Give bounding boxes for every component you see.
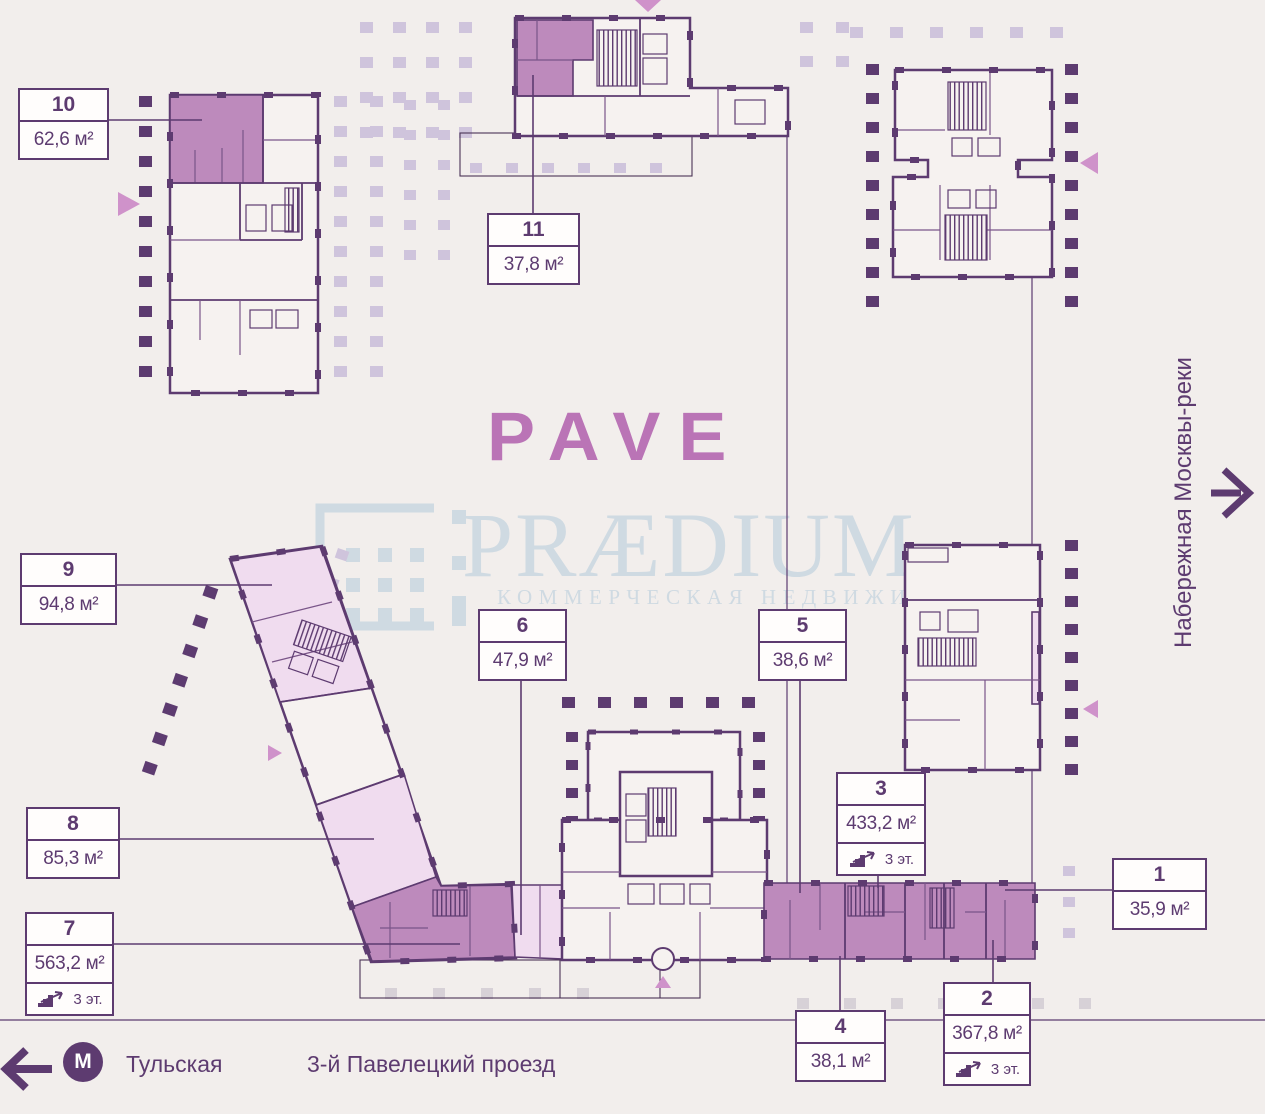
unit-label-7[interactable]: 7 563,2 м² 3 эт. (25, 912, 114, 1016)
unit-label-10[interactable]: 10 62,6 м² (18, 88, 109, 160)
metro-station-label: Тульская (126, 1051, 222, 1078)
embankment-street-label: Набережная Москвы-реки (1170, 357, 1198, 648)
unit-label-2[interactable]: 2 367,8 м² 3 эт. (943, 982, 1031, 1086)
triangle-west-small-icon (1083, 700, 1098, 718)
stairs-icon (954, 1060, 982, 1078)
metro-letter: М (74, 1050, 92, 1074)
unit-number: 11 (489, 215, 578, 245)
building-c-plan (893, 70, 1052, 277)
unit-6-area[interactable] (512, 885, 564, 959)
strip-units-plan[interactable] (764, 883, 1035, 959)
unit-label-6[interactable]: 6 47,9 м² (478, 609, 567, 681)
unit-10-area[interactable] (170, 95, 263, 183)
building-a-plan (170, 95, 318, 393)
unit-number: 3 (838, 774, 924, 804)
stairs-icon (36, 990, 64, 1008)
street-label: 3-й Павелецкий проезд (307, 1051, 555, 1078)
pave-logo: PAVE (487, 398, 744, 476)
unit-number: 1 (1114, 860, 1205, 890)
unit-number: 8 (28, 809, 118, 839)
unit-label-3[interactable]: 3 433,2 м² 3 эт. (836, 772, 926, 876)
unit-label-8[interactable]: 8 85,3 м² (26, 807, 120, 879)
unit-label-5[interactable]: 5 38,6 м² (758, 609, 847, 681)
unit-number: 10 (20, 90, 107, 120)
unit-area: 47,9 м² (480, 641, 565, 679)
unit-area: 35,9 м² (1114, 890, 1205, 928)
unit-area: 38,6 м² (760, 641, 845, 679)
metro-west-arrow-icon (0, 1045, 54, 1093)
unit-number: 4 (797, 1012, 884, 1042)
building-b-plan (515, 18, 788, 136)
metro-icon: М (63, 1042, 103, 1082)
building-d-plan (905, 545, 1040, 770)
unit-area: 85,3 м² (28, 839, 118, 877)
unit-floors: 3 эт. (27, 982, 112, 1014)
unit-area: 62,6 м² (20, 120, 107, 158)
triangle-north-icon (655, 976, 671, 988)
unit-floors: 3 эт. (945, 1052, 1029, 1084)
unit-number: 5 (760, 611, 845, 641)
unit-label-4[interactable]: 4 38,1 м² (795, 1010, 886, 1082)
unit-label-1[interactable]: 1 35,9 м² (1112, 858, 1207, 930)
unit-area: 94,8 м² (22, 585, 115, 623)
triangle-south-icon (635, 0, 661, 12)
unit-area: 563,2 м² (27, 944, 112, 982)
unit-label-9[interactable]: 9 94,8 м² (20, 553, 117, 625)
site-plan (0, 0, 1265, 1114)
unit-number: 7 (27, 914, 112, 944)
triangle-east-small-icon (268, 745, 282, 761)
unit-number: 9 (22, 555, 115, 585)
unit-floors: 3 эт. (838, 842, 924, 874)
unit-area: 433,2 м² (838, 804, 924, 842)
unit-number: 6 (480, 611, 565, 641)
stairs-icon (848, 850, 876, 868)
unit-label-11[interactable]: 11 37,8 м² (487, 213, 580, 285)
triangle-west-icon (1080, 152, 1098, 174)
unit-number: 2 (945, 984, 1029, 1014)
unit-area: 38,1 м² (797, 1042, 884, 1080)
triangle-east-icon (118, 192, 140, 216)
building-f-plan (562, 732, 767, 970)
units-1-2-3-4-5-area (764, 883, 1035, 959)
unit-area: 367,8 м² (945, 1014, 1029, 1052)
unit-area: 37,8 м² (489, 245, 578, 283)
river-east-arrow-icon (1211, 470, 1249, 516)
